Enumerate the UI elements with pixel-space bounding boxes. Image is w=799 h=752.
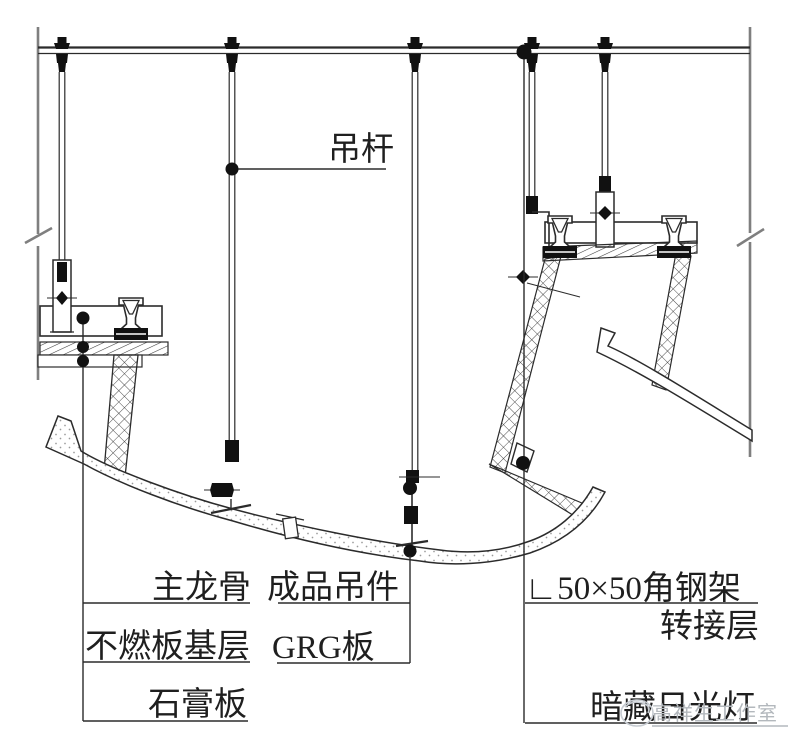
leader-dots xyxy=(77,45,532,471)
right-boundary-break-line xyxy=(737,27,764,457)
angle-frame-left-band xyxy=(490,256,561,473)
leader-lines xyxy=(83,52,758,723)
noncombustible-base-layer xyxy=(40,342,168,355)
label-transfer-layer: 转接层 xyxy=(660,608,759,645)
panel-hanger-fitting xyxy=(396,470,440,558)
label-gypsum-board: 石膏板 xyxy=(148,686,247,723)
left-diagonal-strut xyxy=(104,355,138,477)
angle-frame-right-band xyxy=(652,253,691,390)
label-main-keel: 主龙骨 xyxy=(152,569,251,606)
angle-frame-bottom-band xyxy=(489,464,589,520)
label-noncombustible-base: 不燃板基层 xyxy=(85,628,250,665)
label-grg-panel: GRG板 xyxy=(272,629,375,666)
label-finished-hanger: 成品吊件 xyxy=(267,569,399,606)
label-angle-steel-frame: ∟50×50角钢架 xyxy=(525,570,741,607)
construction-detail-drawing: 吊杆 主龙骨 成品吊件 不燃板基层 GRG板 石膏板 ∟50×50角钢架 转接层… xyxy=(0,0,799,752)
grg-panel-main xyxy=(46,416,605,564)
ceiling-slab-line xyxy=(38,48,750,54)
label-hanger-rod: 吊杆 xyxy=(328,131,394,168)
panel-hanger-fitting xyxy=(204,440,251,513)
watermark-text: 高祥生工作室 xyxy=(652,702,778,725)
